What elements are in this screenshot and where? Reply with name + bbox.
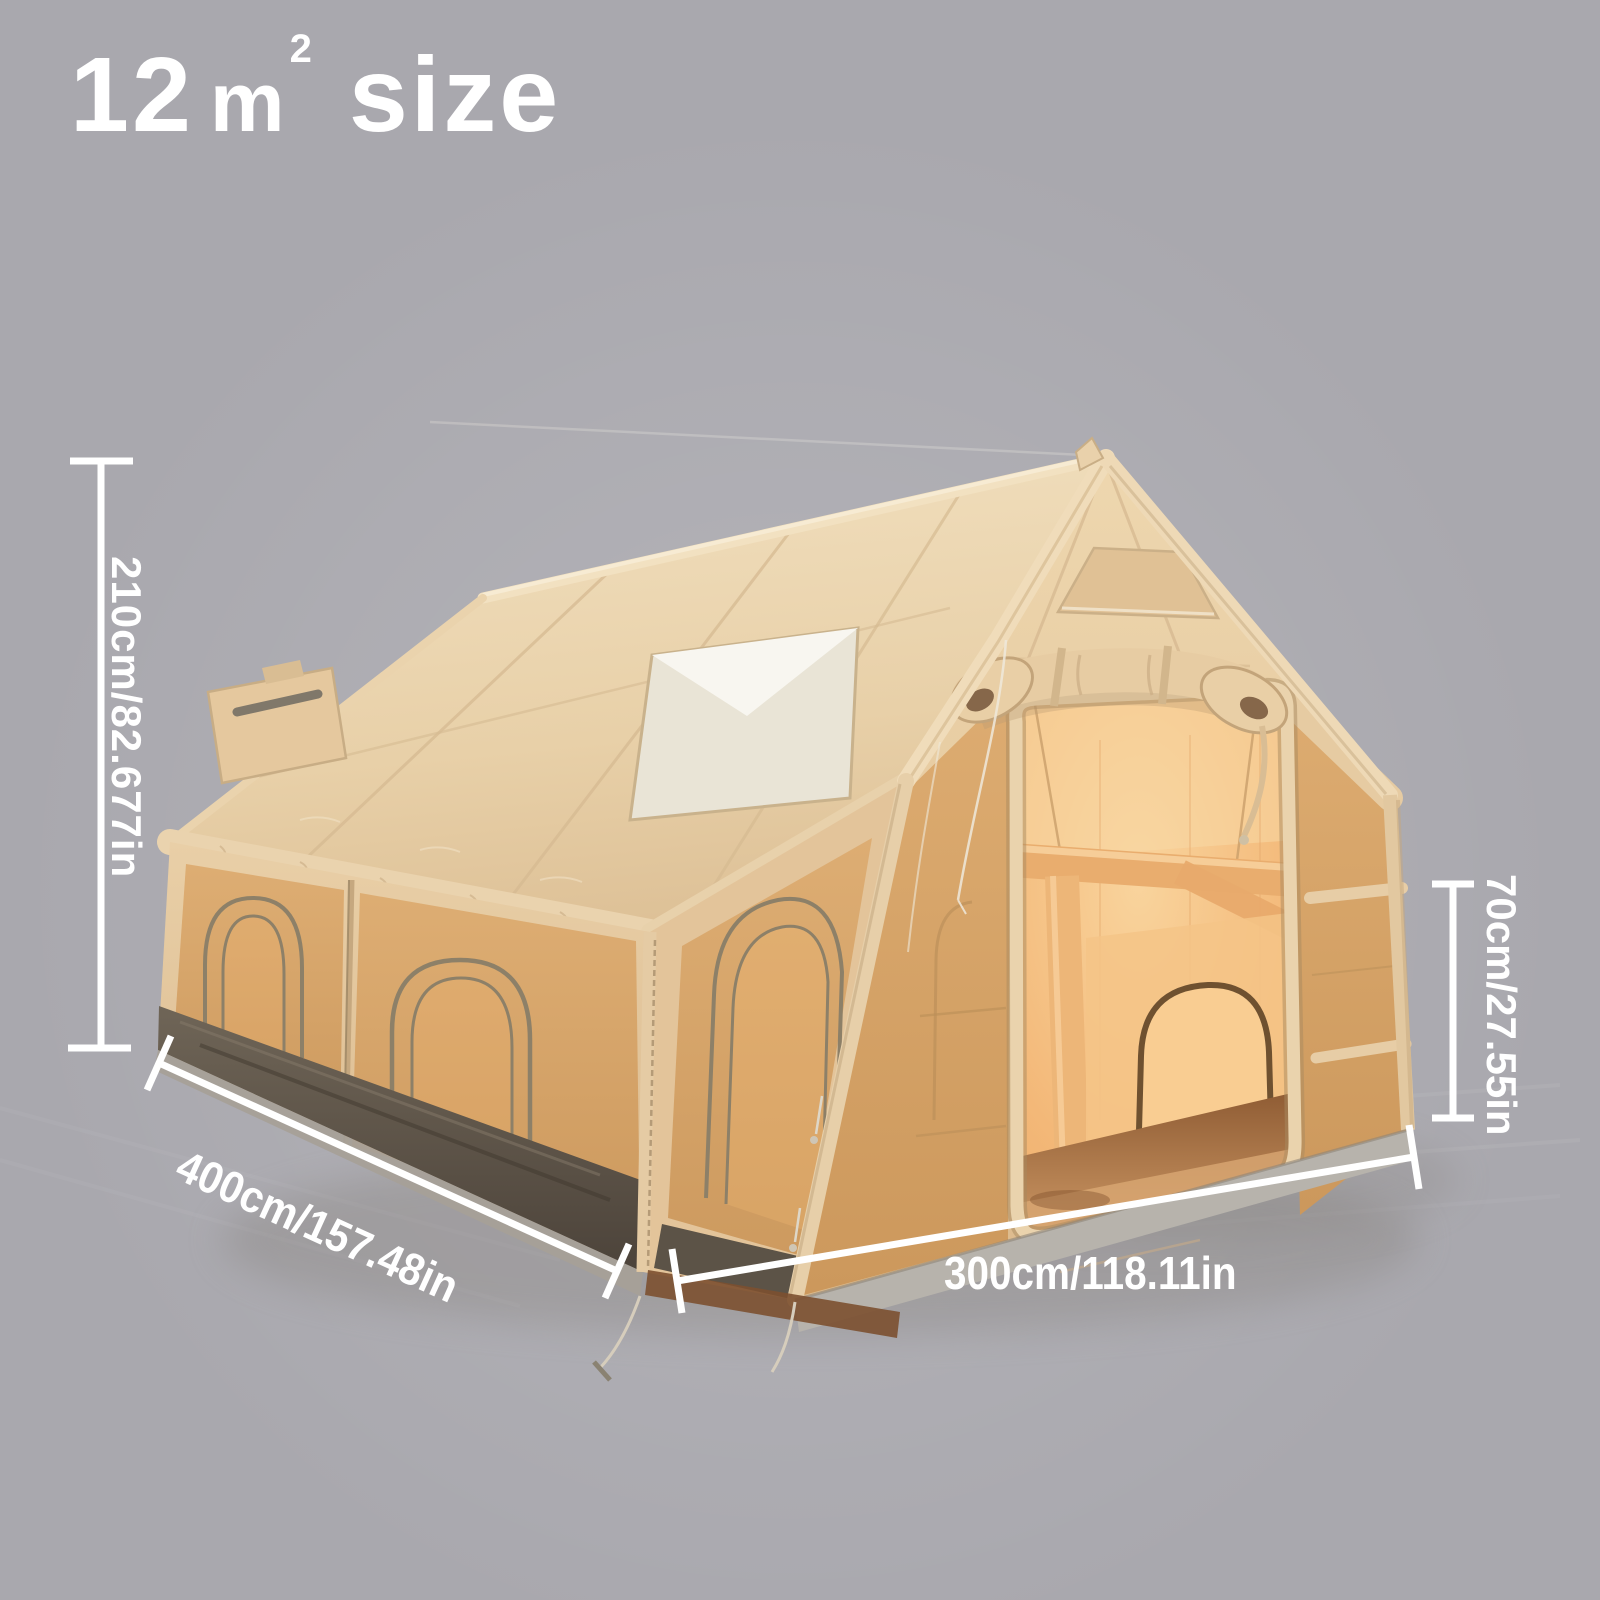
door-height-dimension-label: 70cm/27.55in [1477,874,1525,1136]
height-dimension-label: 210cm/82.677in [102,556,150,878]
title-unit-exponent: 2 [290,27,315,71]
title-number: 12 [70,36,194,154]
title-word: size [349,36,561,154]
product-dimension-image: 12m2size 210cm/82.677in 400cm/157.48in 3… [0,0,1600,1600]
title-unit: m2 [210,55,315,149]
page-title: 12m2size [70,42,561,148]
door-height-dimension-line [1432,884,1474,1118]
depth-dimension-label: 300cm/118.11in [944,1246,1237,1300]
dimension-lines [0,0,1600,1600]
